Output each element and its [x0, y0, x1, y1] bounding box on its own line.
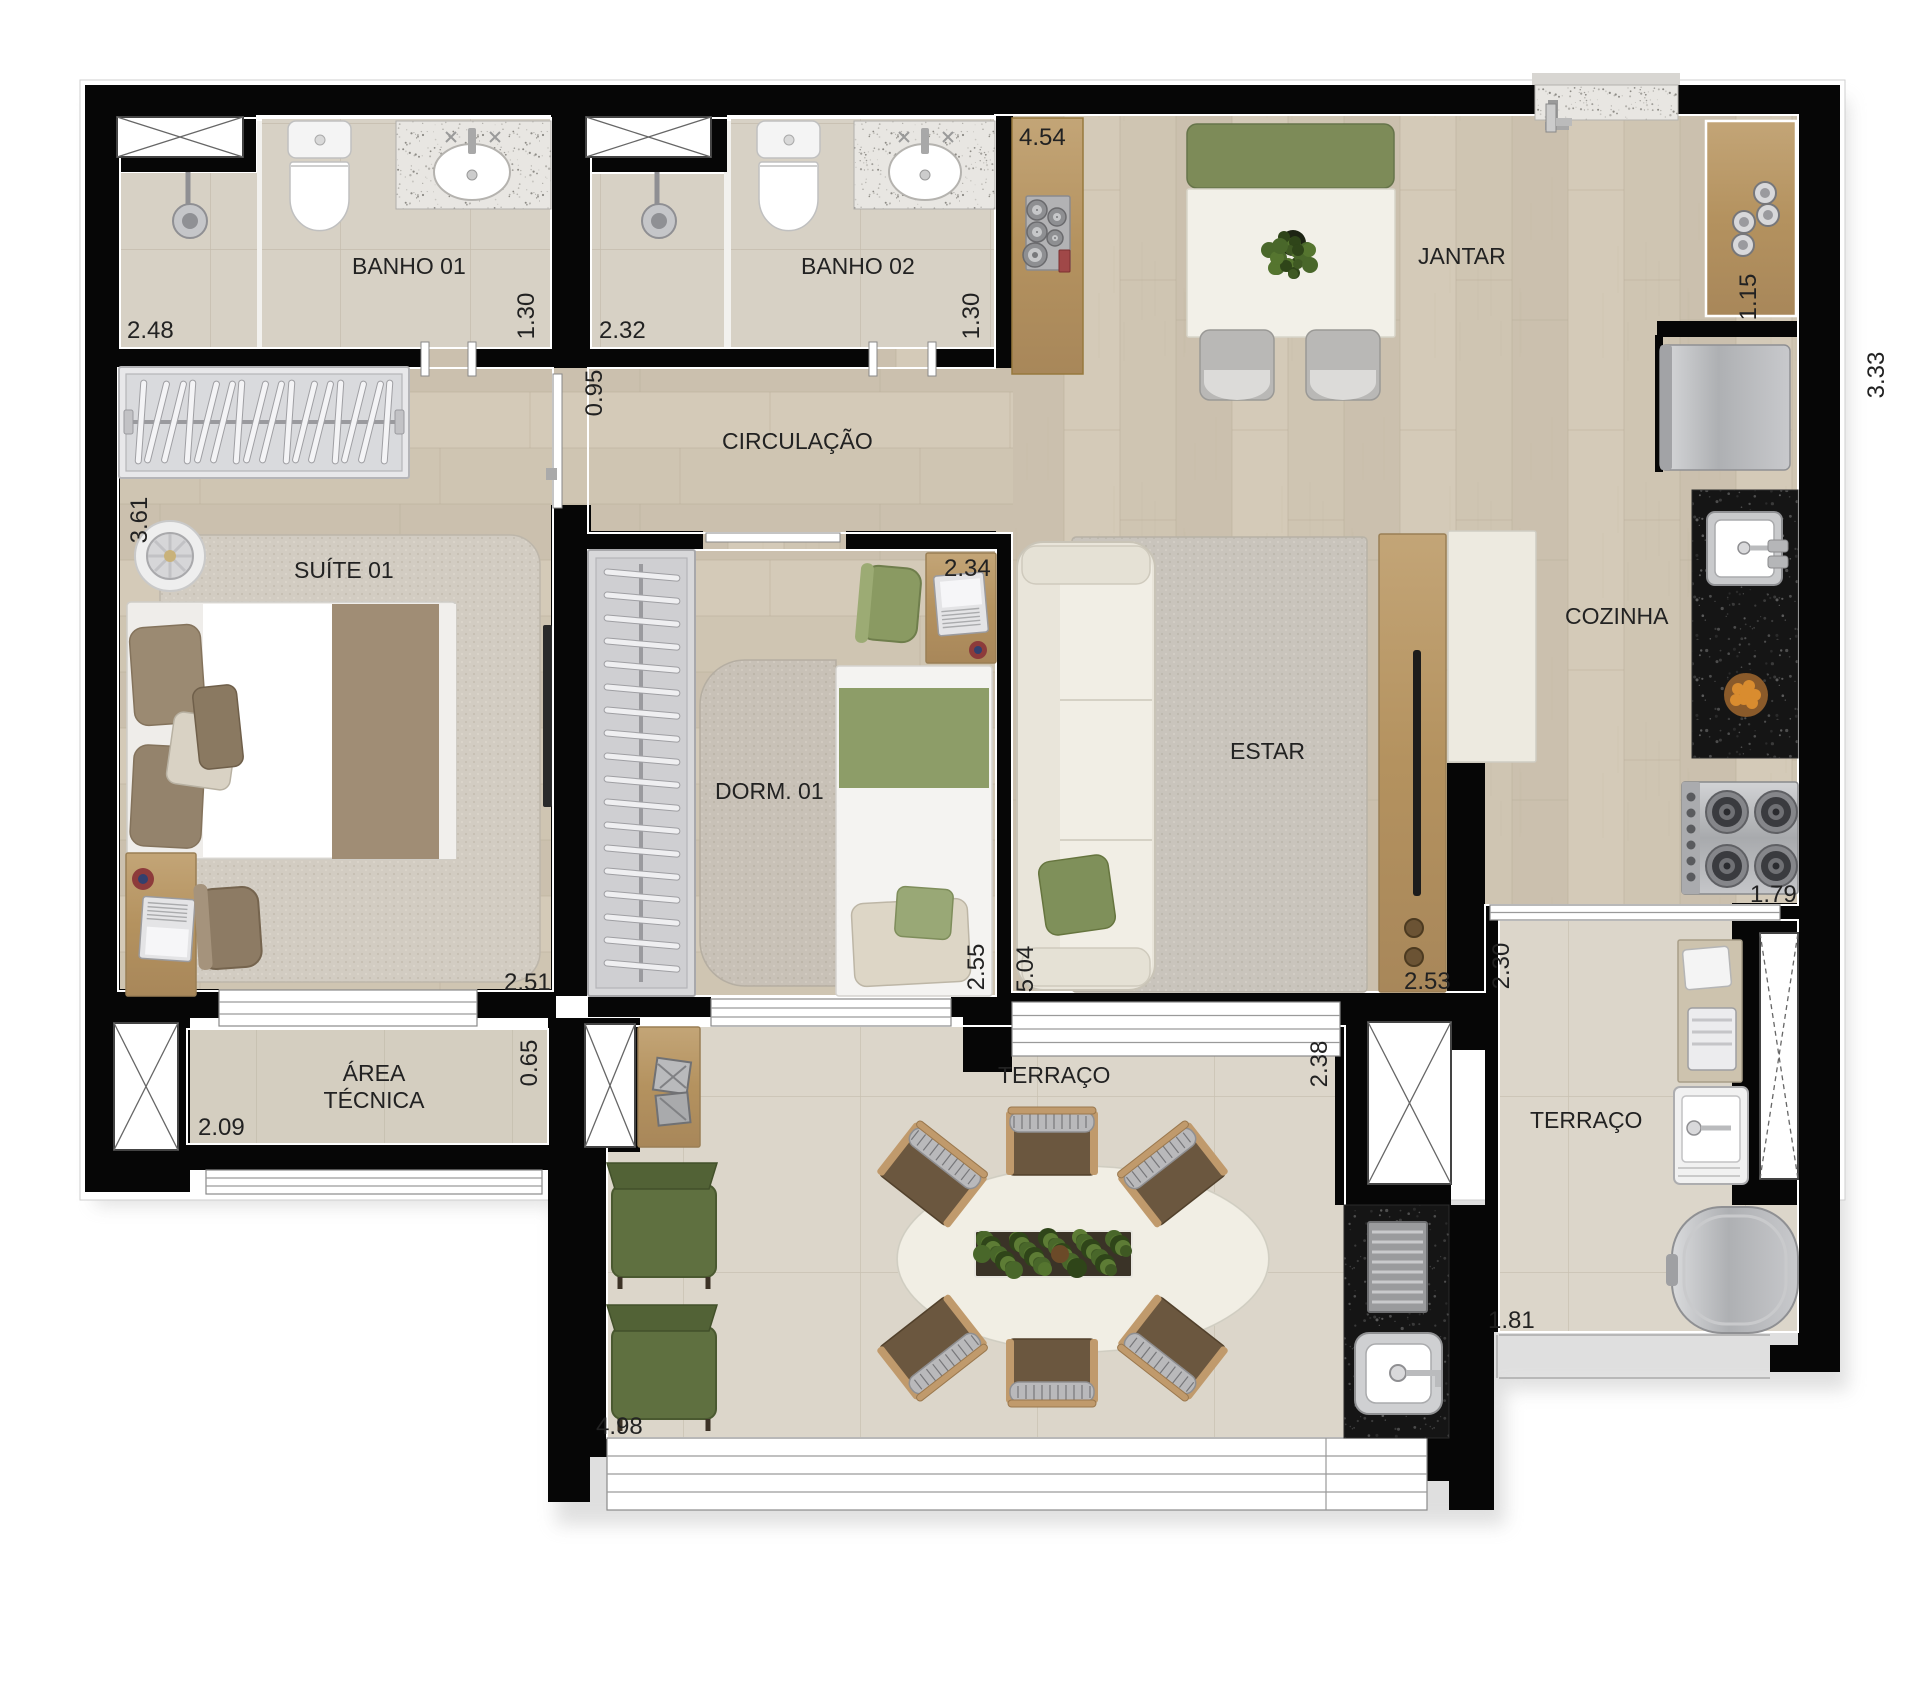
svg-text:1.79: 1.79 [1750, 881, 1797, 908]
svg-text:3.61: 3.61 [126, 497, 153, 544]
svg-text:SUÍTE 01: SUÍTE 01 [294, 557, 394, 583]
svg-text:ESTAR: ESTAR [1230, 738, 1305, 764]
svg-text:5.04: 5.04 [1012, 946, 1039, 993]
svg-text:1.30: 1.30 [958, 293, 985, 340]
svg-text:1.81: 1.81 [1488, 1307, 1535, 1334]
svg-text:2.51: 2.51 [504, 969, 551, 996]
svg-text:COZINHA: COZINHA [1565, 603, 1669, 629]
svg-text:2.48: 2.48 [127, 317, 174, 344]
svg-text:TÉCNICA: TÉCNICA [324, 1087, 426, 1113]
svg-text:3.33: 3.33 [1863, 352, 1890, 399]
svg-text:ÁREA: ÁREA [343, 1060, 406, 1086]
svg-text:2.38: 2.38 [1306, 1041, 1333, 1088]
svg-text:4.54: 4.54 [1019, 124, 1066, 151]
svg-text:TERRAÇO: TERRAÇO [1530, 1107, 1642, 1133]
svg-text:2.30: 2.30 [1488, 943, 1515, 990]
svg-text:0.95: 0.95 [581, 370, 608, 417]
svg-text:2.53: 2.53 [1404, 968, 1451, 995]
svg-text:2.55: 2.55 [963, 944, 990, 991]
svg-text:CIRCULAÇÃO: CIRCULAÇÃO [722, 428, 873, 454]
svg-text:JANTAR: JANTAR [1418, 243, 1506, 269]
svg-text:4.98: 4.98 [596, 1413, 643, 1440]
svg-text:BANHO 01: BANHO 01 [352, 253, 466, 279]
svg-text:BANHO 02: BANHO 02 [801, 253, 915, 279]
svg-text:1.30: 1.30 [513, 293, 540, 340]
svg-text:2.32: 2.32 [599, 317, 646, 344]
svg-text:TERRAÇO: TERRAÇO [998, 1062, 1110, 1088]
svg-text:2.09: 2.09 [198, 1114, 245, 1141]
svg-text:DORM. 01: DORM. 01 [715, 778, 824, 804]
svg-text:1.15: 1.15 [1735, 274, 1762, 321]
svg-text:2.34: 2.34 [944, 555, 991, 582]
svg-text:0.65: 0.65 [516, 1040, 543, 1087]
